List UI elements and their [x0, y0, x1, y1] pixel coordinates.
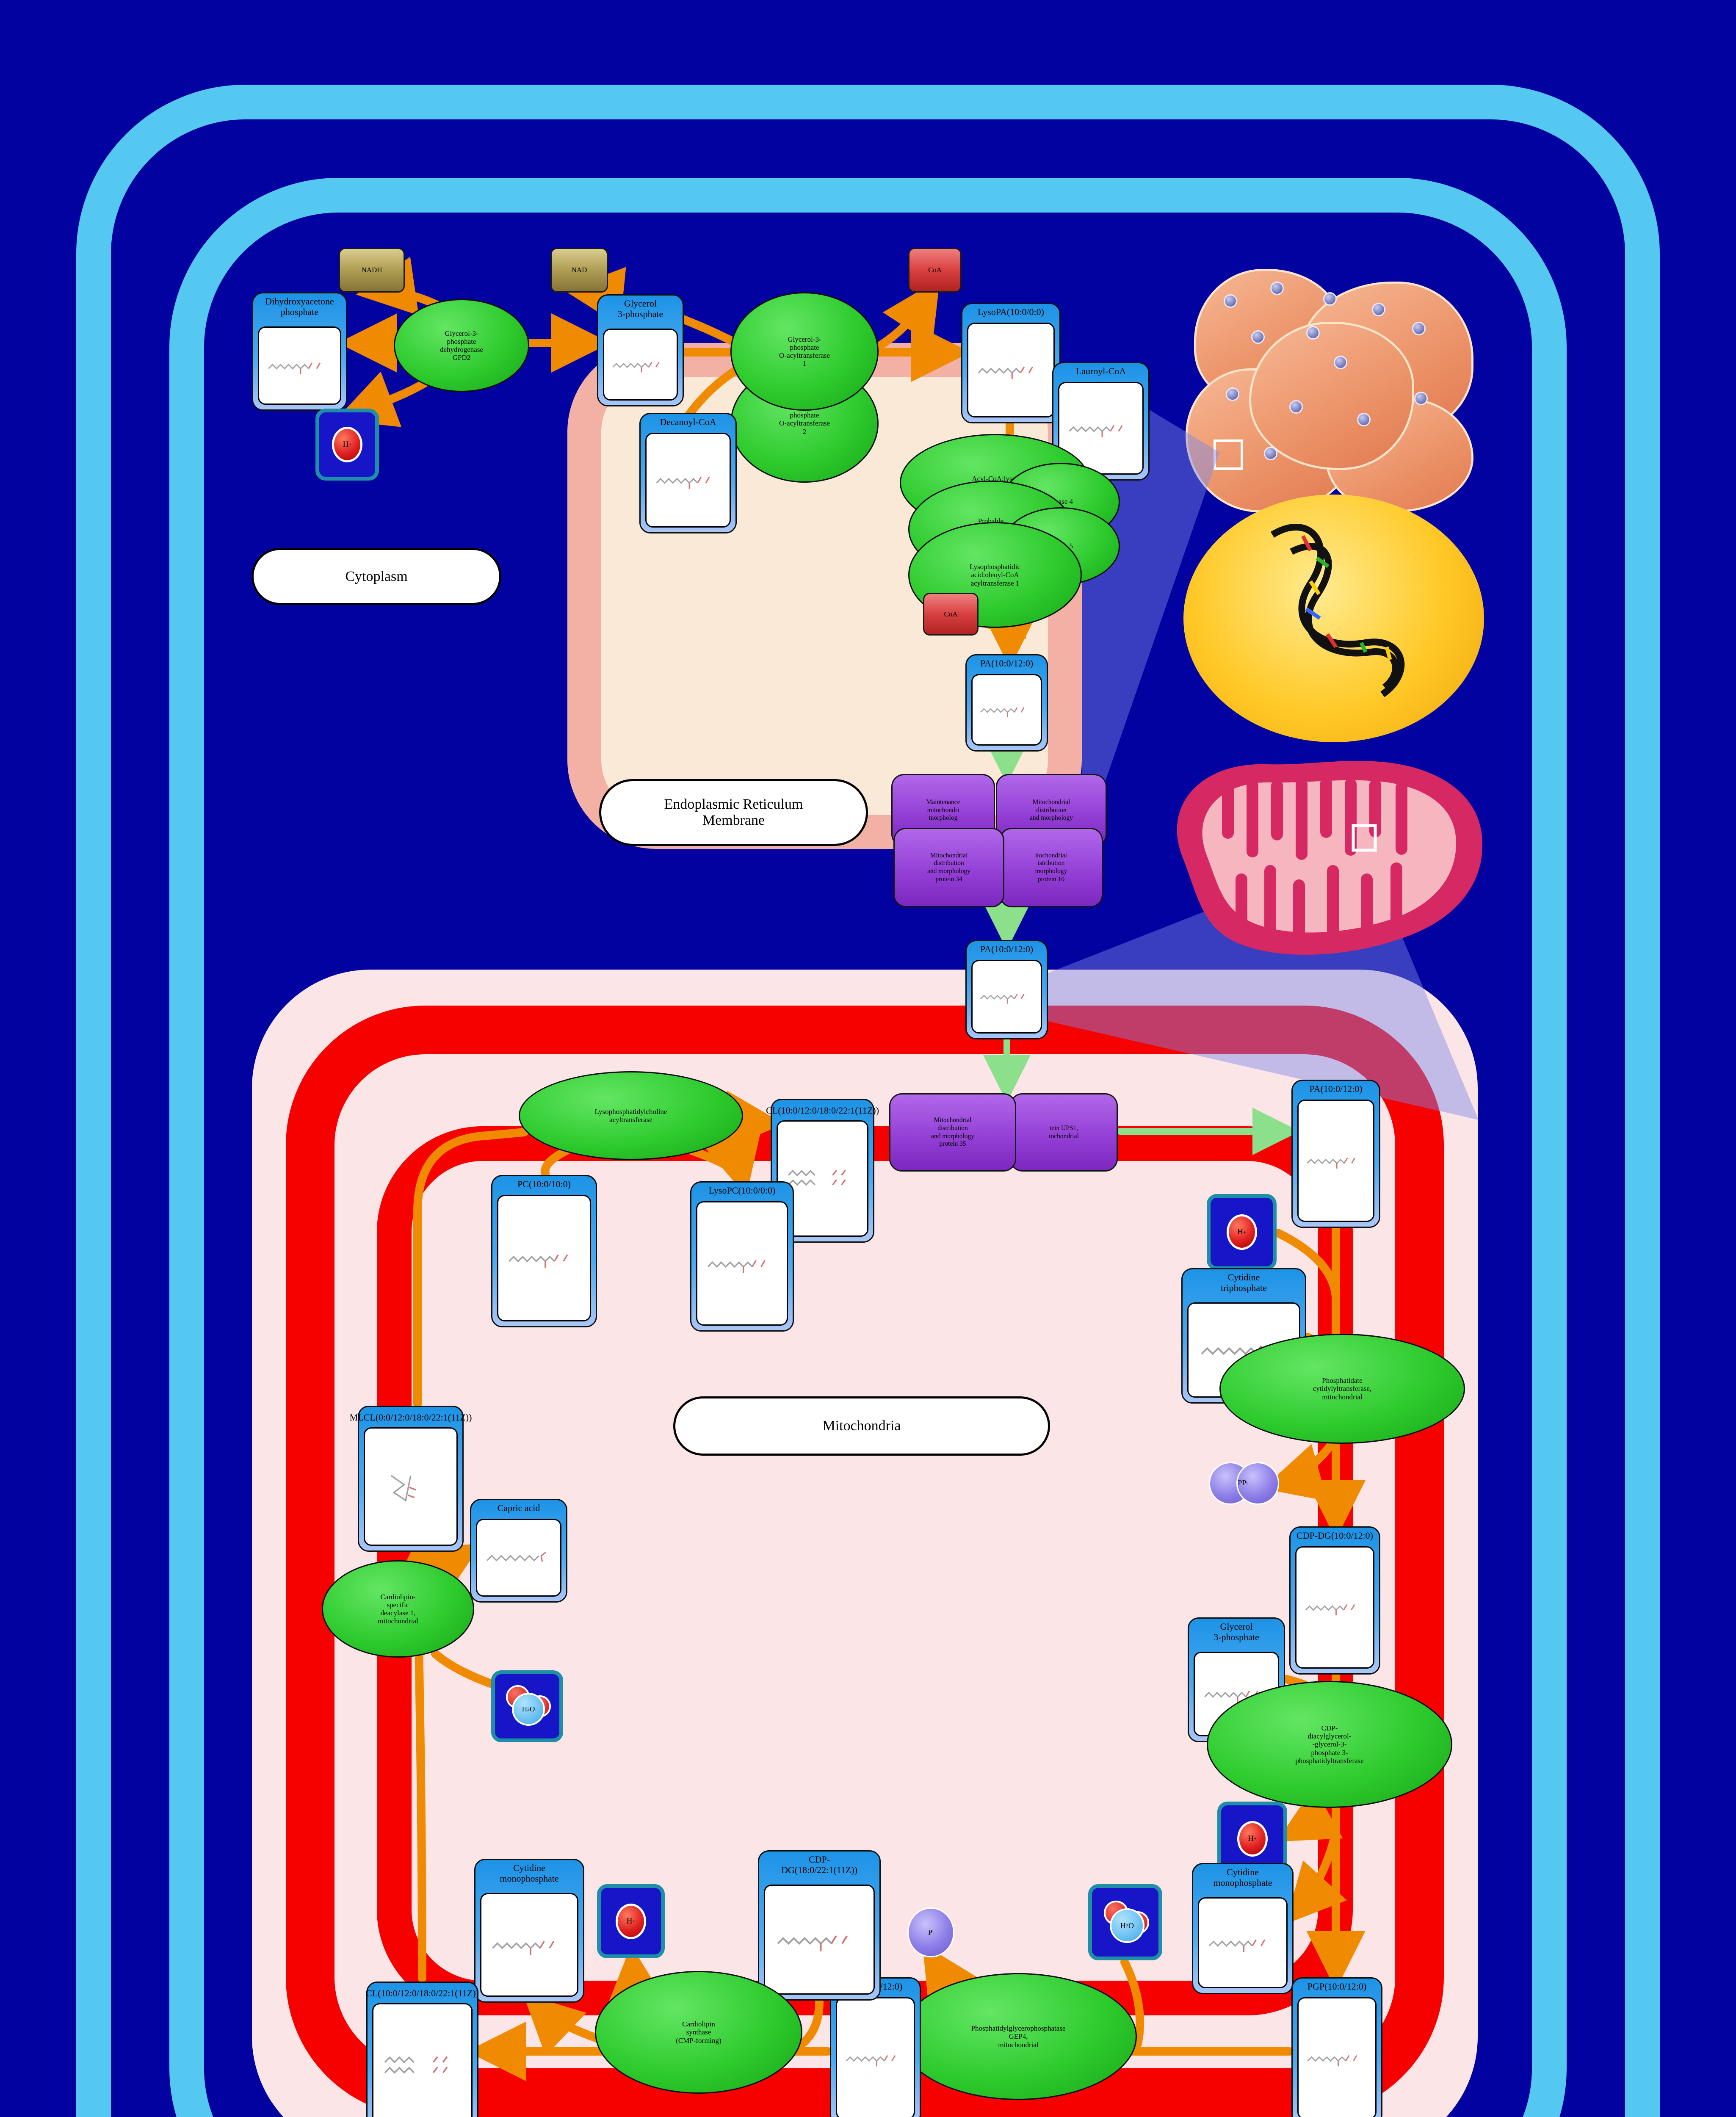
arrow-to-lysopc [685, 1148, 742, 1180]
metabolite-label: MLCL(0:0/12:0/18:0/22:1(11Z)) [350, 1409, 472, 1423]
enzyme-cardiolipin-synthase[interactable]: Cardiolipin synthase (CMP-forming) [595, 1971, 802, 2094]
metabolite-label: PA(10:0/12:0) [967, 655, 1047, 669]
molecule-structure [704, 1248, 780, 1280]
nad-label: NAD [572, 266, 587, 274]
structure-panel [364, 1427, 458, 1546]
metabolite-pa-er-1[interactable]: PA(10:0/12:0) [965, 654, 1048, 752]
enzyme-label: phosphate O-acyltransferase 2 [779, 411, 830, 436]
structure-panel [480, 1893, 578, 1997]
molecule-structure [975, 355, 1047, 385]
molecule-structure [1304, 1147, 1368, 1174]
protein-label: Mitochondrial distribution and morpholog… [927, 852, 970, 883]
metabolite-cl-lower[interactable]: CL(10:0/12:0/18:0/22:1(11Z)) [366, 1982, 478, 2117]
molecule-structure [1205, 1927, 1280, 1958]
cofactor-h-plus-2[interactable]: H+ [1207, 1194, 1277, 1270]
h-ion: H+ [1227, 1214, 1257, 1250]
molecule-structure [843, 2045, 908, 2072]
arrow-gpat-to-coa [871, 293, 931, 351]
enzyme-lysophosphatidylcholine-acyltransferase[interactable]: Lysophosphatidylcholine acyltransferase [519, 1071, 743, 1160]
metabolite-label: Glycerol 3-phosphate [1189, 1619, 1284, 1642]
structure-panel [497, 1195, 591, 1321]
molecule-structure [653, 465, 724, 495]
h-label: H [343, 440, 349, 449]
structure-panel [372, 2003, 473, 2117]
structure-panel [836, 1997, 915, 2117]
pathway-canvas: NADH NAD CoA Dihydroxyacetone phosphate … [0, 0, 1736, 2117]
structure-panel [645, 433, 731, 528]
protein-mdm10[interactable]: itochondrial istribution morphology prot… [999, 828, 1103, 907]
structure-panel [1297, 1997, 1377, 2117]
h-ion: H+ [1237, 1821, 1268, 1857]
coa-label: CoA [928, 266, 942, 274]
structure-panel [603, 329, 678, 401]
enzyme-gpd2[interactable]: Glycerol-3- phosphate dehydrogenase GPD2 [394, 299, 529, 392]
metabolite-label: LysoPC(10:0/0:0) [691, 1183, 793, 1196]
molecule-structure [978, 984, 1036, 1009]
er-membrane-text: Endoplasmic Reticulum Membrane [664, 796, 803, 829]
protein-mdm35[interactable]: Mitochondrial distribution and morpholog… [889, 1093, 1016, 1172]
metabolite-label: CDP-DG(10:0/12:0) [1291, 1528, 1379, 1541]
metabolite-decanoyl-coa[interactable]: Decanoyl-CoA [639, 413, 737, 533]
metabolite-label: PGP(10:0/12:0) [1293, 1979, 1381, 1992]
enzyme-label: Phosphatidylglycerophosphatase GEP4, mit… [971, 2024, 1066, 2049]
metabolite-label: Capric acid [471, 1500, 566, 1514]
metabolite-label: Decanoyl-CoA [641, 414, 735, 428]
molecule-structure [978, 698, 1036, 722]
enzyme-gpat1[interactable]: Glycerol-3- phosphate O-acyltransferase … [730, 292, 879, 411]
molecule-structure [773, 1921, 865, 1959]
h-label: H [627, 1917, 633, 1926]
metabolite-label: CL(10:0/12:0/18:0/22:1(11Z)) [366, 1985, 479, 1999]
molecule-structure [505, 1242, 583, 1274]
metabolite-label: Cytidine monophosphate [1193, 1864, 1292, 1888]
pp-text: PP [1238, 1479, 1246, 1487]
arrow-to-ppi [1279, 1438, 1336, 1484]
metabolite-label: PA(10:0/12:0) [967, 941, 1047, 955]
structure-panel [476, 1519, 561, 1597]
metabolite-label: PC(10:0/10:0) [492, 1176, 596, 1190]
cofactor-ppi[interactable]: PPi [1209, 1459, 1277, 1507]
molecule-structure [610, 352, 671, 378]
h-ion: H+ [616, 1904, 646, 1939]
protein-label: Mitochondrial distribution and morpholog… [1030, 799, 1073, 822]
plus-label: + [632, 1918, 635, 1924]
coa-label: CoA [944, 610, 957, 619]
cofactor-nad[interactable]: NAD [550, 248, 608, 293]
metabolite-label: Cytidine triphosphate [1183, 1269, 1305, 1293]
structure-panel [1297, 1100, 1374, 1222]
protein-mdm34[interactable]: Mitochondrial distribution and morpholog… [893, 828, 1004, 907]
protein-label: tein UPS1, tochondrial [1049, 1125, 1079, 1140]
cofactor-nadh[interactable]: NADH [339, 248, 405, 293]
structure-panel [1198, 1897, 1288, 1988]
h-text: H [522, 1705, 527, 1713]
enzyme-label: Cardiolipin synthase (CMP-forming) [676, 2020, 721, 2045]
molecule-structure [381, 2048, 464, 2083]
molecule-structure [265, 351, 334, 380]
protein-label: Mitochondrial distribution and morpholog… [931, 1117, 974, 1148]
enzyme-cdp-dag-g3p-phosphatidyltransferase[interactable]: CDP- diacylglycerol- -glycerol-3- phosph… [1207, 1681, 1452, 1808]
structure-panel [1295, 1546, 1374, 1669]
compartment-label-er-membrane: Endoplasmic Reticulum Membrane [599, 779, 868, 846]
metabolite-label: Dihydroxyacetone phosphate [253, 293, 346, 317]
enzyme-phosphatidate-cytidylyltransferase[interactable]: Phosphatidate cytidylyltransferase, mito… [1219, 1334, 1465, 1444]
o-text: O [530, 1705, 535, 1713]
metabolite-capric-acid[interactable]: Capric acid [470, 1499, 567, 1603]
structure-panel [967, 323, 1055, 417]
o-text: O [1128, 1921, 1134, 1930]
ppi-label: PPi [1209, 1459, 1277, 1507]
plus-label: + [348, 442, 351, 448]
i-text: i [1246, 1480, 1247, 1486]
metabolite-pc[interactable]: PC(10:0/10:0) [491, 1175, 597, 1327]
metabolite-g3p-cytoplasm[interactable]: Glycerol 3-phosphate [597, 294, 684, 406]
molecule-structure [484, 1543, 554, 1572]
metabolite-cdp-dg-1[interactable]: CDP-DG(10:0/12:0) [1289, 1526, 1380, 1675]
nadh-label: NADH [361, 266, 382, 274]
cofactor-h-plus-4[interactable]: H+ [597, 1884, 665, 1958]
cofactor-h-plus-1[interactable]: H+ [315, 409, 379, 481]
enzyme-label: Glycerol-3- phosphate O-acyltransferase … [779, 335, 830, 368]
structure-panel [971, 960, 1042, 1034]
metabolite-cmp-left[interactable]: Cytidine monophosphate [474, 1859, 584, 2003]
enzyme-cardiolipin-deacylase[interactable]: Cardiolipin- specific deacylase 1, mitoc… [322, 1560, 474, 1658]
structure-panel [258, 326, 341, 405]
metabolite-pa-mito[interactable]: PA(10:0/12:0) [1291, 1080, 1380, 1228]
h-text: H [1120, 1921, 1126, 1930]
metabolite-dhap[interactable]: Dihydroxyacetone phosphate [252, 292, 347, 411]
metabolite-label: PA(10:0/12:0) [1293, 1081, 1379, 1094]
arrow-lpcat-to-cl [741, 1121, 767, 1123]
cofactor-h2o-gep4[interactable]: H2O [1088, 1884, 1162, 1960]
cofact-coa-lower[interactable]: CoA [923, 593, 979, 636]
metabolite-label: Lauroyl-CoA [1053, 363, 1148, 377]
structure-panel [971, 674, 1042, 746]
enzyme-label: CDP- diacylglycerol- -glycerol-3- phosph… [1295, 1724, 1363, 1765]
h-label: H [1237, 1227, 1243, 1237]
structure-panel [696, 1201, 788, 1326]
metabolite-cdp-dg-2[interactable]: CDP- DG(18:0/22:1(11Z)) [758, 1850, 881, 2001]
enzyme-label: Lysophosphatidylcholine acyltransferase [595, 1108, 667, 1124]
cytoplasm-text: Cytoplasm [345, 569, 407, 585]
plus-label: + [1254, 1835, 1257, 1842]
compartment-label-cytoplasm: Cytoplasm [252, 548, 501, 605]
metabolite-label: Cytidine monophosphate [475, 1860, 583, 1884]
metabolite-pa-er-2[interactable]: PA(10:0/12:0) [965, 940, 1048, 1039]
h2o-sphere: H2O [512, 1693, 545, 1726]
metabolite-label: LysoPA(10:0/0:0) [962, 304, 1059, 318]
molecule-structure [489, 1928, 570, 1962]
metabolite-label: CL(10:0/12:0/18:0/22:1(11Z)) [766, 1103, 879, 1116]
plus-label: + [1243, 1229, 1246, 1235]
metabolite-label: CDP- DG(18:0/22:1(11Z)) [759, 1852, 879, 1875]
metabolite-lysopc[interactable]: LysoPC(10:0/0:0) [690, 1181, 794, 1332]
i-text: i [932, 1929, 934, 1936]
enzyme-label: Cardiolipin- specific deacylase 1, mitoc… [378, 1593, 418, 1625]
arrow-to-cmp-right [1296, 1835, 1335, 1912]
protein-ups1[interactable]: tein UPS1, tochondrial [1010, 1093, 1118, 1172]
h-label: H [1248, 1834, 1254, 1843]
h-ion: H+ [332, 427, 362, 462]
metabolite-mlcl[interactable]: MLCL(0:0/12:0/18:0/22:1(11Z)) [358, 1406, 464, 1552]
molecule-structure [785, 1163, 860, 1194]
metabolite-pgp[interactable]: PGP(10:0/12:0) [1291, 1977, 1382, 2117]
compartment-label-mitochondria: Mitochondria [673, 1396, 1050, 1456]
cofactor-coa-upper[interactable]: CoA [908, 248, 962, 293]
molecule-structure [1302, 1594, 1368, 1621]
enzyme-gep4[interactable]: Phosphatidylglycerophosphatase GEP4, mit… [900, 1973, 1137, 2100]
protein-label: Maintenance mitochondri morpholog [926, 799, 960, 822]
metabolite-cmp-right[interactable]: Cytidine monophosphate [1192, 1863, 1294, 1994]
enzyme-label: Glycerol-3- phosphate dehydrogenase GPD2 [440, 329, 483, 362]
molecule-structure [1305, 2045, 1370, 2072]
molecule-structure [372, 1470, 450, 1503]
mitochondria-text: Mitochondria [822, 1418, 901, 1434]
structure-panel [764, 1885, 875, 1995]
enzyme-label: Phosphatidate cytidylyltransferase, mito… [1313, 1376, 1371, 1401]
protein-label: itochondrial istribution morphology prot… [1035, 852, 1067, 883]
metabolite-lysopa[interactable]: LysoPA(10:0/0:0) [961, 303, 1061, 423]
cofactor-h2o-deacylase[interactable]: H2O [491, 1670, 563, 1742]
p-text: P [928, 1928, 932, 1937]
h2o-sphere: H2O [1110, 1908, 1144, 1943]
molecule-structure [1066, 414, 1136, 443]
enzyme-label: Lysophosphatidic acid:oleoyl-CoA acyltra… [970, 563, 1020, 587]
cofactor-pi[interactable]: Pi [907, 1907, 954, 1957]
metabolite-label: Glycerol 3-phosphate [598, 296, 683, 319]
